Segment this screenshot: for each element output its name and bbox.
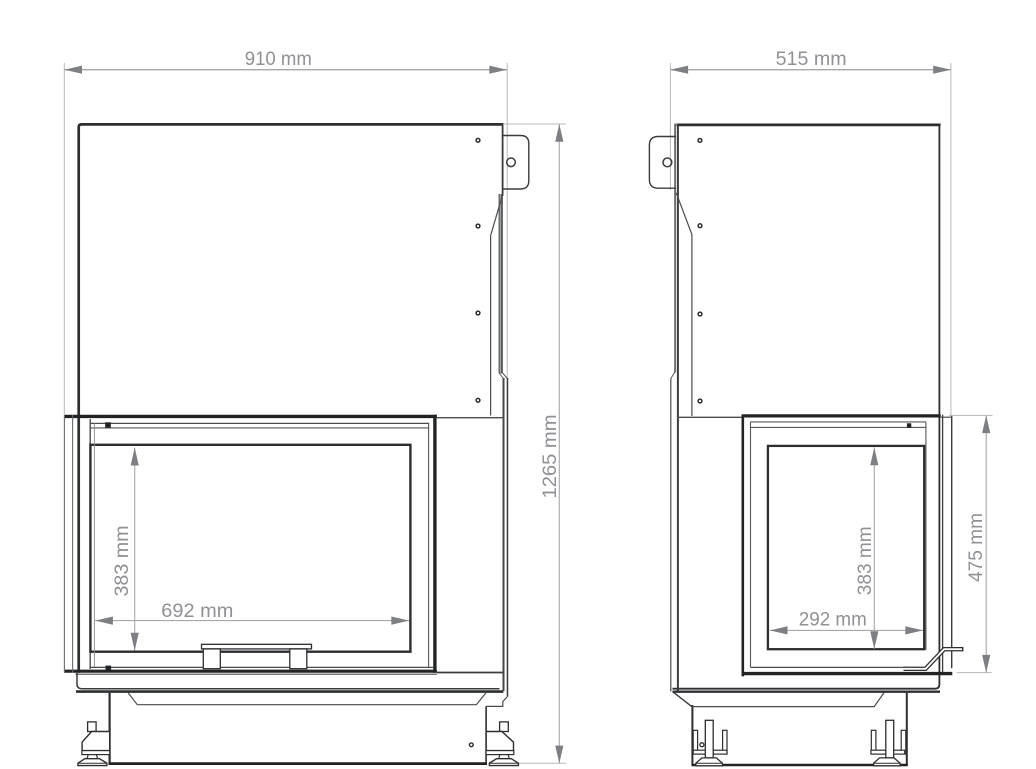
svg-text:292 mm: 292 mm <box>799 609 867 630</box>
svg-text:692 mm: 692 mm <box>161 601 233 622</box>
svg-text:475 mm: 475 mm <box>966 513 987 582</box>
svg-text:383 mm: 383 mm <box>112 526 133 597</box>
svg-text:910 mm: 910 mm <box>245 49 312 70</box>
svg-text:515 mm: 515 mm <box>776 49 847 70</box>
svg-text:383 mm: 383 mm <box>855 526 876 595</box>
svg-text:1265 mm: 1265 mm <box>540 415 561 499</box>
